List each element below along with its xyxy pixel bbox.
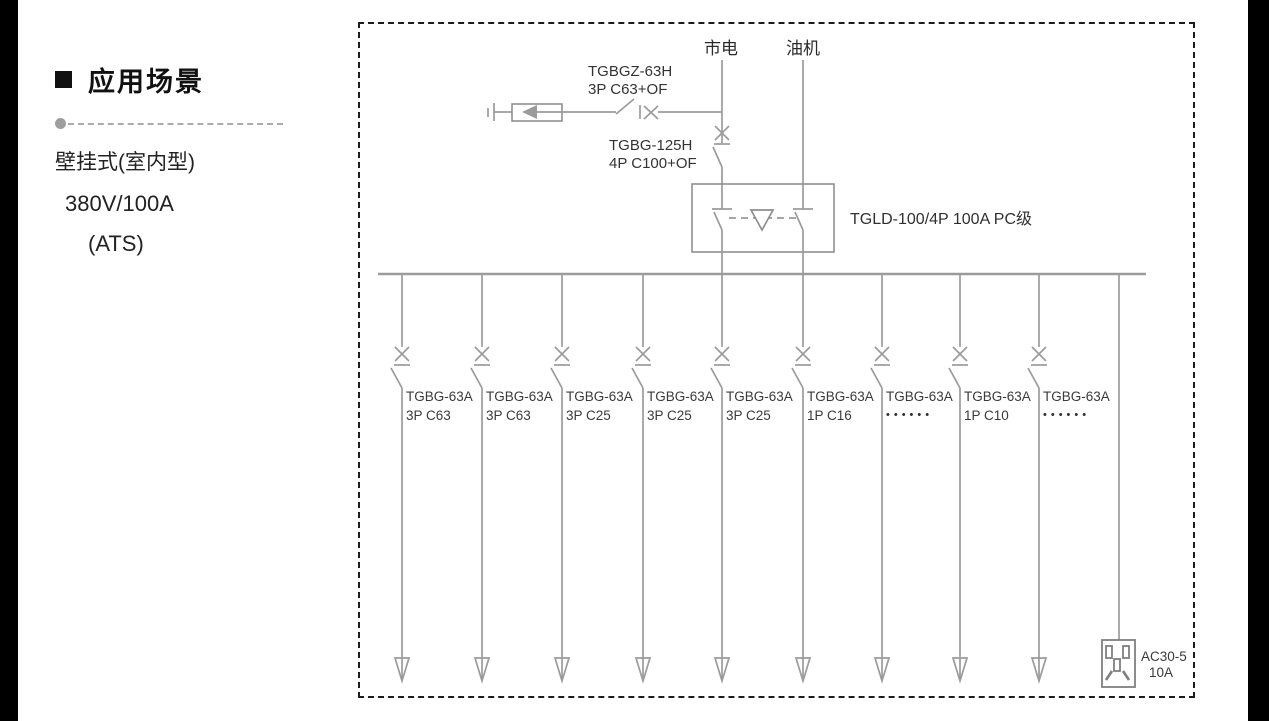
section-header: 应用场景 [55,60,305,99]
spd-breaker-spec: 3P C63+OF [588,81,667,98]
generator-source-label: 油机 [786,39,820,58]
branch-model: TGBG-63A [964,389,1031,404]
branch-circuit-6: TGBG-63A 1P C16 [792,275,874,681]
ats-label: TGLD-100/4P 100A PC级 [850,210,1032,228]
single-line-diagram: 市电 油机 [358,22,1195,698]
breaker-x-icon [796,347,810,361]
branch-spec-ellipsis: •••••• [886,409,933,421]
branch-model: TGBG-63A [647,389,714,404]
branch-model: TGBG-63A [406,389,473,404]
section-bullet-square-icon [55,71,72,88]
branch-circuit-5: TGBG-63A 3P C25 [711,275,793,681]
rating-text: 380V/100A [55,191,305,217]
branch-model: TGBG-63A [1043,389,1110,404]
branch-spec: 1P C16 [807,408,852,423]
branch-model: TGBG-63A [486,389,553,404]
spd-breaker-model: TGBGZ-63H [588,63,672,80]
branch-circuit-7: TGBG-63A •••••• [871,275,953,681]
section-divider [55,118,283,129]
main-breaker-spec: 4P C100+OF [609,155,697,172]
branch-spec: 3P C63 [486,408,531,423]
branch-circuit-8: TGBG-63A 1P C10 [949,275,1031,681]
branch-circuit-4: TGBG-63A 3P C25 [632,275,714,681]
branch-model: TGBG-63A [807,389,874,404]
mains-feeder-line [713,60,730,209]
main-breaker-symbol [713,126,730,167]
branch-circuit-2: TGBG-63A 3P C63 [471,275,553,681]
socket-icon [1102,640,1135,687]
socket-rating: 10A [1149,665,1173,680]
branch-circuit-1: TGBG-63A 3P C63 [391,275,473,681]
ats-text: (ATS) [55,231,305,257]
section-title: 应用场景 [88,60,204,99]
socket-model: AC30-5 [1141,649,1187,664]
spd-branch [488,99,722,121]
divider-dashed-line [68,123,283,125]
breaker-x-icon [953,347,967,361]
ats-actuator-triangle-icon [751,210,773,230]
breaker-x-icon [715,347,729,361]
branch-model: TGBG-63A [886,389,953,404]
branch-spec: 1P C10 [964,408,1009,423]
spd-breaker-label: TGBGZ-63H 3P C63+OF [588,63,672,98]
breaker-x-icon [395,347,409,361]
main-breaker-model: TGBG-125H [609,137,692,154]
branch-model: TGBG-63A [566,389,633,404]
ats-switch [692,184,834,274]
branch-spec-ellipsis: •••••• [1043,409,1090,421]
breaker-x-icon [636,347,650,361]
branch-spec: 3P C25 [726,408,771,423]
right-edge-bar [1248,0,1269,721]
left-panel: 应用场景 壁挂式(室内型) 380V/100A (ATS) [55,60,305,257]
branch-circuit-9: TGBG-63A •••••• [1028,275,1110,681]
left-edge-bar [0,0,18,721]
breaker-x-icon [1032,347,1046,361]
branch-spec: 3P C25 [647,408,692,423]
breaker-x-icon [475,347,489,361]
socket-circuit: AC30-5 10A [1102,275,1187,687]
branch-circuit-3: TGBG-63A 3P C25 [551,275,633,681]
mains-source-label: 市电 [704,39,738,58]
breaker-x-icon [555,347,569,361]
ground-icon [488,103,494,121]
breaker-x-icon [875,347,889,361]
branch-spec: 3P C25 [566,408,611,423]
spd-breaker-symbol [616,99,658,119]
mount-type-text: 壁挂式(室内型) [55,146,305,176]
branch-spec: 3P C63 [406,408,451,423]
branch-model: TGBG-63A [726,389,793,404]
divider-dot-icon [55,118,66,129]
main-breaker-label: TGBG-125H 4P C100+OF [609,137,697,172]
schematic-svg: 市电 油机 [360,24,1193,696]
